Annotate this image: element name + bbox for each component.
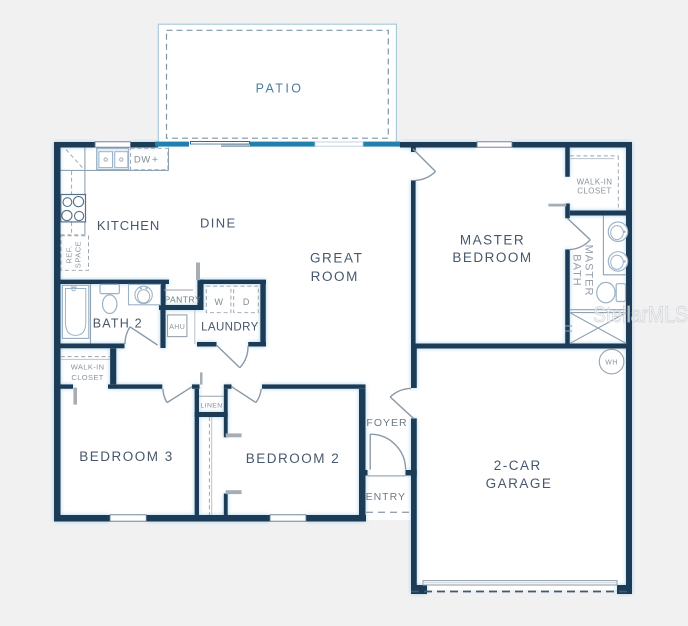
svg-text:WALK-IN: WALK-IN: [577, 178, 613, 187]
svg-text:GREAT: GREAT: [310, 251, 364, 266]
svg-text:FOYER: FOYER: [366, 417, 407, 429]
svg-text:BEDROOM: BEDROOM: [452, 250, 532, 265]
svg-text:CLOSET: CLOSET: [71, 373, 103, 382]
svg-text:DINE: DINE: [200, 216, 237, 231]
svg-text:2-CAR: 2-CAR: [494, 458, 542, 473]
svg-text:ENTRY: ENTRY: [366, 491, 406, 503]
svg-text:LINEN: LINEN: [200, 403, 222, 410]
svg-text:PANTRY: PANTRY: [164, 294, 201, 304]
svg-text:D: D: [243, 297, 250, 307]
svg-text:SPACE: SPACE: [74, 241, 83, 268]
svg-text:PATIO: PATIO: [256, 81, 304, 95]
svg-text:MASTER: MASTER: [583, 245, 595, 297]
svg-text:ROOM: ROOM: [311, 269, 359, 284]
svg-text:BEDROOM 2: BEDROOM 2: [246, 451, 341, 466]
svg-text:StellarMLS: StellarMLS: [593, 302, 688, 327]
svg-text:WALK-IN: WALK-IN: [71, 363, 105, 372]
svg-text:REF.: REF.: [65, 245, 74, 263]
svg-text:WH: WH: [605, 359, 618, 366]
svg-text:DW: DW: [134, 155, 151, 166]
svg-text:MASTER: MASTER: [460, 233, 525, 248]
svg-text:BATH 2: BATH 2: [93, 316, 143, 330]
svg-text:GARAGE: GARAGE: [486, 476, 553, 491]
svg-text:AHU: AHU: [169, 324, 185, 331]
svg-text:KITCHEN: KITCHEN: [97, 218, 160, 233]
svg-text:BEDROOM 3: BEDROOM 3: [79, 449, 174, 464]
svg-text:W: W: [214, 297, 223, 307]
svg-text:LAUNDRY: LAUNDRY: [201, 322, 259, 334]
svg-text:BATH: BATH: [571, 254, 583, 287]
svg-text:CLOSET: CLOSET: [577, 187, 611, 196]
